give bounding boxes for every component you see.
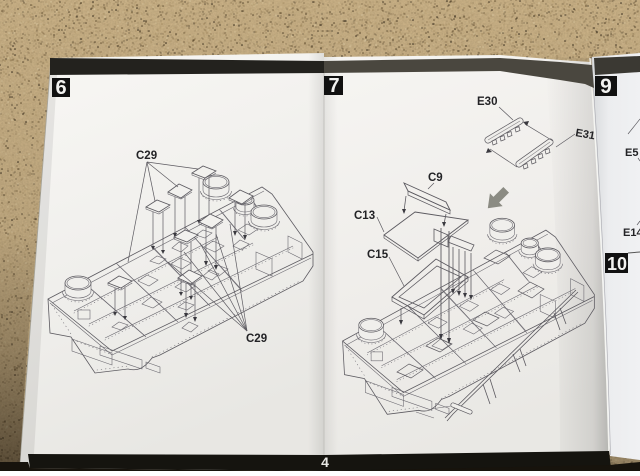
svg-text:E30: E30 — [477, 96, 497, 108]
svg-text:9: 9 — [600, 75, 612, 98]
svg-text:10: 10 — [607, 254, 627, 274]
svg-text:C9: C9 — [428, 172, 443, 184]
svg-text:E14: E14 — [623, 227, 640, 239]
svg-text:C15: C15 — [367, 249, 389, 261]
svg-text:C29: C29 — [136, 150, 157, 162]
svg-text:7: 7 — [328, 75, 339, 97]
svg-text:6: 6 — [55, 77, 66, 99]
svg-text:C29: C29 — [246, 333, 267, 345]
svg-text:E5: E5 — [625, 147, 638, 159]
svg-text:4: 4 — [321, 454, 329, 470]
svg-text:C13: C13 — [354, 210, 375, 222]
